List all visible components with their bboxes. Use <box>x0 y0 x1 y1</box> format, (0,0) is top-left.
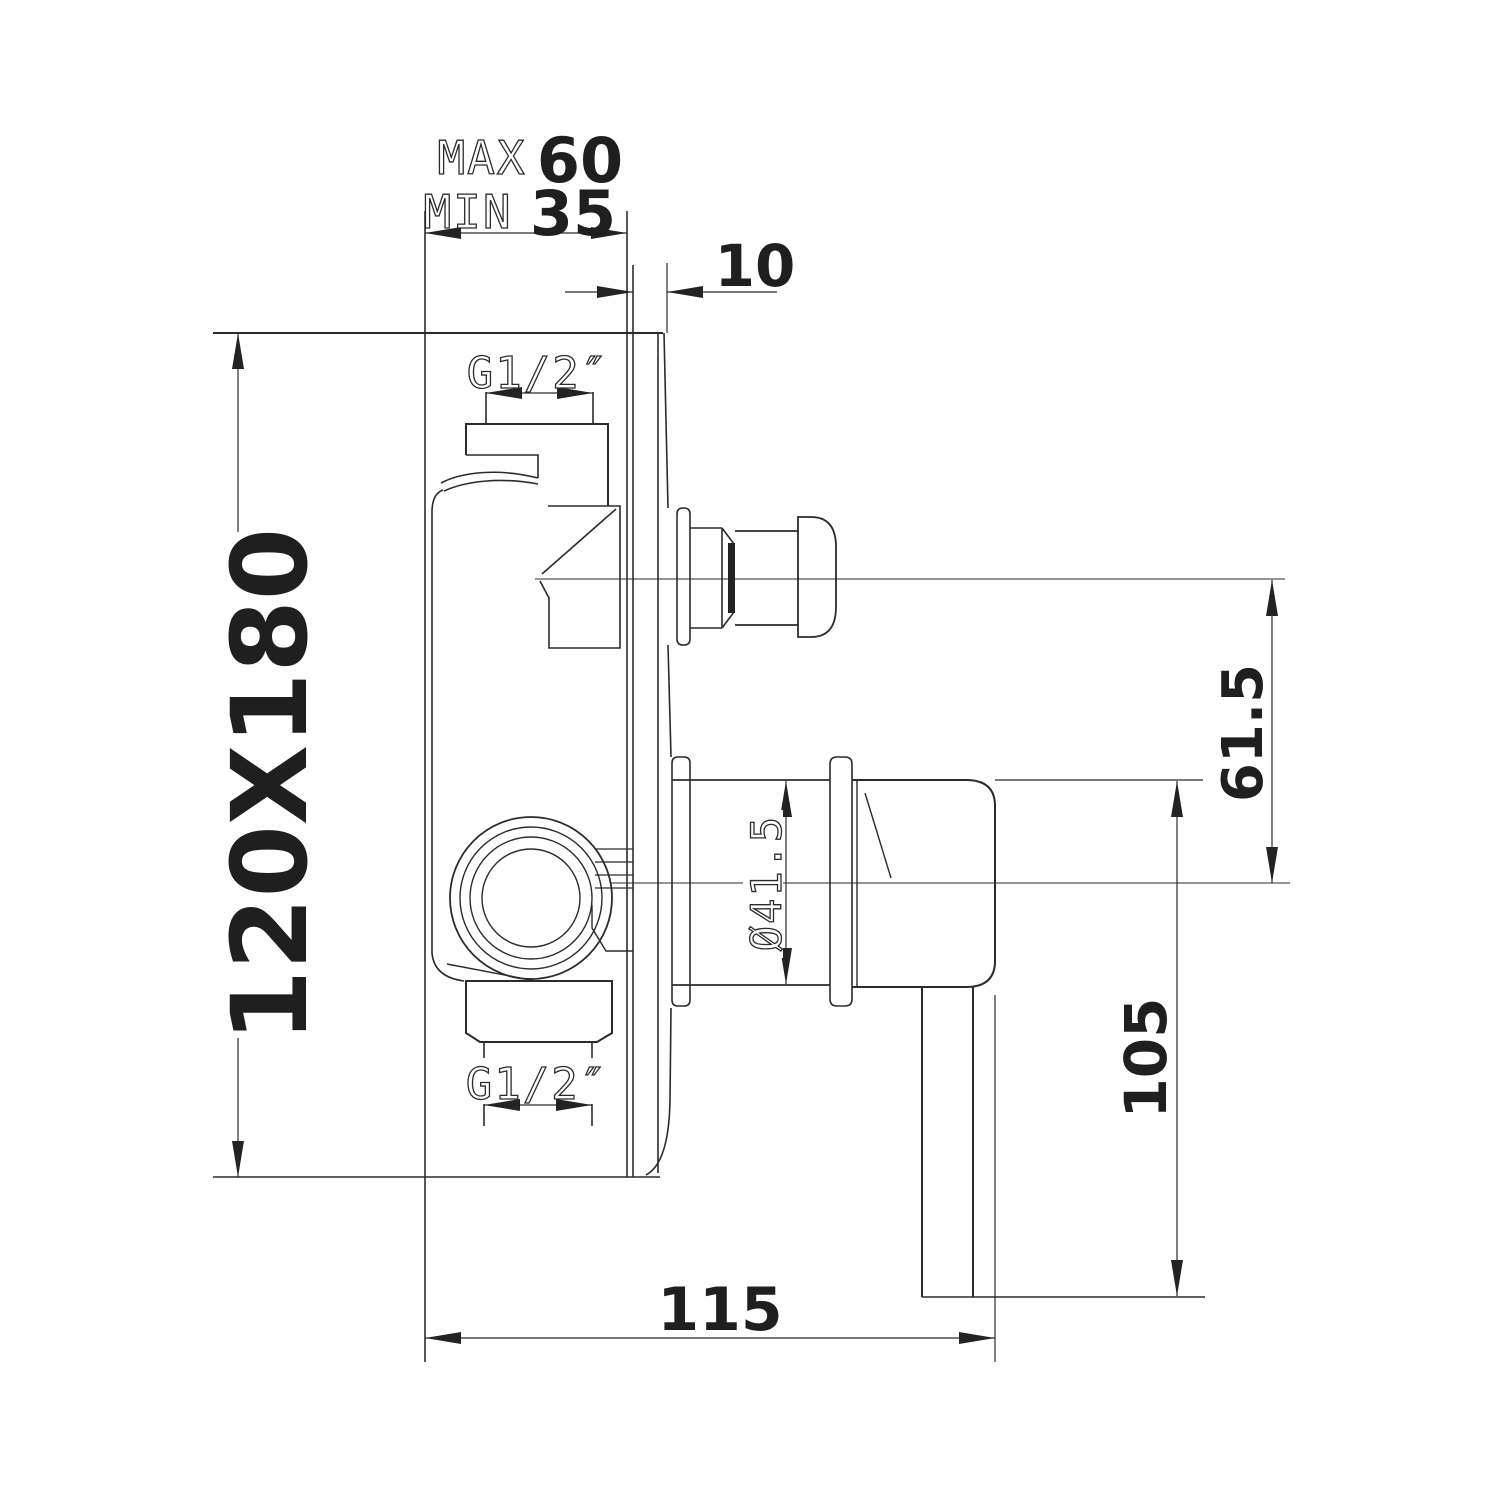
union-bore <box>482 849 580 947</box>
value-body-depth: 115 <box>657 1275 782 1345</box>
flange-front-edge-top <box>664 333 668 508</box>
label-thread-top: G1/2″ <box>467 348 609 399</box>
arrow-down <box>1171 1260 1183 1296</box>
cone-upper-diagonal <box>542 509 616 574</box>
knob-flange <box>677 508 690 645</box>
knob-cylinder <box>735 531 798 625</box>
knob-neck <box>690 528 734 628</box>
arrow-right <box>667 286 703 298</box>
value-handle-axis-offset: 61.5 <box>1211 664 1276 802</box>
flange-front-edge-mid <box>668 645 671 757</box>
drawing-page: MAX 60 MIN 35 10 G1/2″ 120X180 Ø41.5 61.… <box>0 0 1500 1500</box>
value-handle-drop: 105 <box>1112 997 1180 1118</box>
value-min-35: 35 <box>530 177 616 250</box>
arrow-up <box>1266 580 1278 616</box>
union-port-circles <box>450 817 612 979</box>
arrow-up <box>1171 781 1183 817</box>
value-plate-size: 120X180 <box>209 528 331 1042</box>
label-max: MAX <box>437 131 526 185</box>
value-plate-protrusion: 10 <box>715 232 796 300</box>
union-ring-2 <box>460 827 602 969</box>
union-ring-3 <box>470 837 592 959</box>
diverter-cone <box>540 506 620 648</box>
box-inner-face <box>432 490 464 981</box>
cone-step <box>540 506 620 648</box>
upper-inlet-boss <box>441 392 608 506</box>
union-ring-outer <box>450 817 612 979</box>
technical-drawing-canvas: MAX 60 MIN 35 10 G1/2″ 120X180 Ø41.5 61.… <box>0 0 1500 1500</box>
lower-spout-diagonal <box>447 964 536 981</box>
arrow-up <box>232 333 244 369</box>
hub-cone-line <box>865 793 891 878</box>
knob-seal-ring <box>728 543 735 613</box>
upper-boss-outline <box>466 424 608 506</box>
label-thread-bottom: G1/2″ <box>466 1059 608 1110</box>
hub-collar <box>830 757 852 1006</box>
label-sleeve-diameter: Ø41.5 <box>742 815 791 951</box>
sleeve-grommet <box>672 757 690 1006</box>
spout-curve-lower <box>444 480 538 491</box>
knob-cap <box>798 517 836 637</box>
lower-boss-outline <box>466 981 612 1042</box>
diverter-knob <box>677 508 836 645</box>
upper-shoulder <box>466 455 538 478</box>
arrow-left <box>425 1332 461 1344</box>
arrow-right <box>959 1332 995 1344</box>
label-min: MIN <box>423 185 512 239</box>
mounting-flange <box>646 333 671 1175</box>
arrow-down <box>1266 847 1278 883</box>
arrow-down <box>232 1141 244 1177</box>
